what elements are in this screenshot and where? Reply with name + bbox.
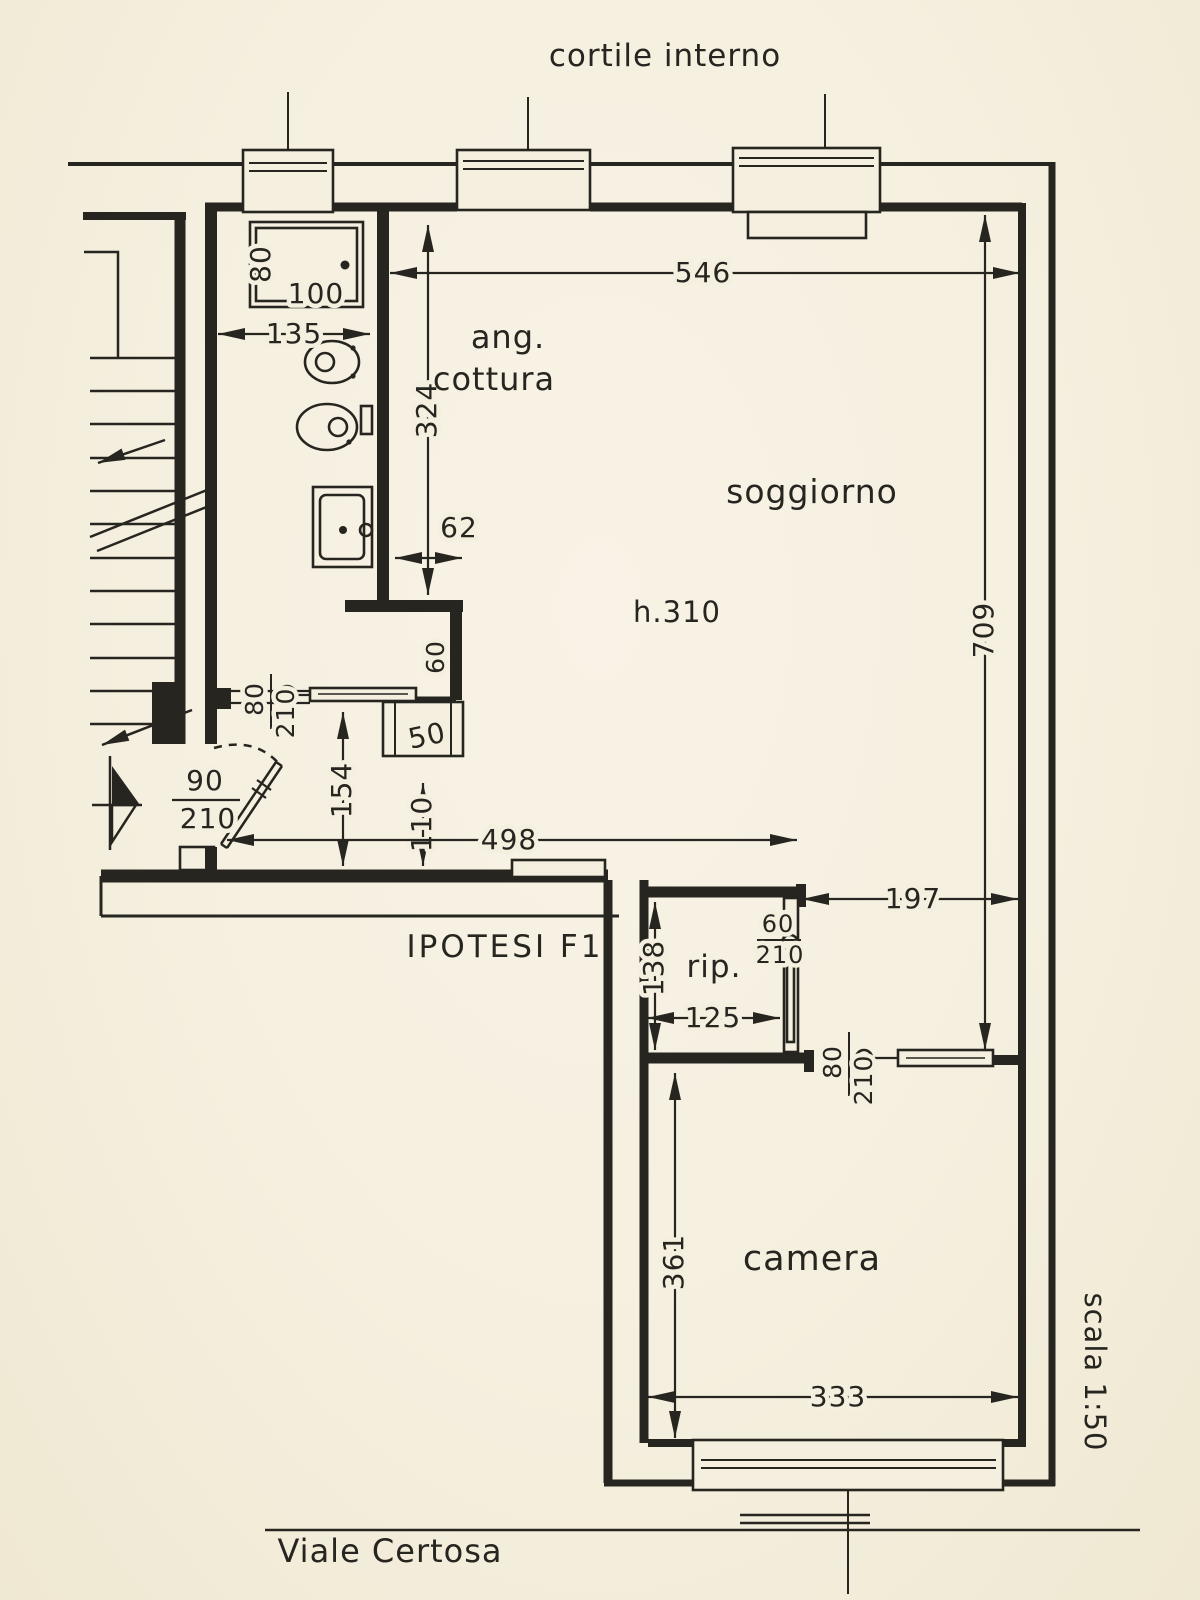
bidet — [297, 404, 372, 450]
window-bathroom — [243, 150, 333, 212]
dim-living-width-label: 546 — [675, 256, 731, 289]
stair-landing-edge — [84, 252, 118, 358]
dimensions: 546 324 135 80 100 62 60 50 154 110 — [218, 215, 1020, 1438]
dim-niche-gap-label: 62 — [440, 511, 478, 544]
stair-direction-arrow — [98, 440, 165, 463]
window-kitchen — [457, 150, 590, 210]
dim-shower-length-label: 100 — [288, 277, 344, 310]
floor-plan-page: 546 324 135 80 100 62 60 50 154 110 — [0, 0, 1200, 1600]
storage-door-width: 60 — [762, 910, 795, 938]
dim-bath-width-label: 135 — [266, 317, 322, 350]
entry-door-width: 90 — [186, 764, 224, 797]
storage-door-height: 210 — [756, 941, 805, 969]
dim-bedroom-depth-label: 361 — [657, 1234, 690, 1290]
reference-lines — [288, 92, 848, 1594]
dim-bedroom-width: 333 — [648, 1380, 1018, 1413]
bath-door-height: 210 — [271, 688, 300, 739]
dim-hall-depth-label: 154 — [325, 762, 358, 818]
bedroom-label: camera — [743, 1239, 881, 1279]
courtyard-label: cortile interno — [549, 38, 781, 74]
bidet-faucet — [361, 406, 372, 434]
dim-shower-width-label: 80 — [244, 245, 277, 283]
dim-passage-width-label: 197 — [885, 882, 941, 915]
ceiling-height-label: h.310 — [633, 595, 721, 629]
dim-kitchen-depth: 324 — [410, 225, 443, 595]
washbasin — [313, 487, 372, 567]
dim-hall-inner: 110 — [405, 783, 438, 866]
bedroom-door-size: 80 210 — [818, 1032, 878, 1105]
dim-storage-width-label: 125 — [685, 1001, 741, 1034]
scale-label: scala 1:50 — [1078, 1293, 1112, 1452]
door-swing-arc — [214, 745, 281, 766]
kitchen-label-1: ang. — [471, 318, 545, 356]
dim-hall-width-label: 498 — [481, 823, 537, 856]
street-label: Viale Certosa — [277, 1532, 502, 1570]
dim-niche-depth-label: 60 — [421, 640, 450, 674]
dim-bedroom-depth: 361 — [657, 1073, 690, 1438]
hypothesis-label: IPOTESI F1 — [407, 929, 604, 965]
storage-label: rip. — [687, 949, 742, 985]
staircase — [84, 252, 214, 745]
dim-hall-width: 498 — [227, 823, 797, 856]
bath-door-size: 80 210 — [240, 674, 300, 738]
dim-niche-gap: 62 — [395, 511, 478, 558]
wall-storage-bottom-jamb — [804, 1050, 814, 1072]
window-living — [733, 148, 880, 238]
bedroom-door-height: 210 — [849, 1055, 878, 1106]
radiator — [512, 860, 605, 877]
dim-living-width: 546 — [390, 256, 1020, 289]
entry-door-size: 90 210 — [172, 764, 240, 835]
kitchen-label-2: cottura — [433, 360, 555, 398]
dim-living-depth-label: 709 — [967, 602, 1000, 658]
dim-bedroom-width-label: 333 — [810, 1380, 866, 1413]
shower-drain — [341, 261, 350, 270]
wall-bath-door-jamb — [217, 688, 231, 709]
dim-hall-inner-label: 110 — [405, 796, 438, 852]
floor-plan-svg: 546 324 135 80 100 62 60 50 154 110 — [0, 0, 1200, 1600]
stair-treads — [90, 358, 176, 724]
dim-living-depth: 709 — [967, 215, 1000, 1050]
dim-storage-width: 125 — [647, 1001, 780, 1034]
north-entry-marker — [92, 756, 142, 850]
living-label: soggiorno — [726, 472, 898, 511]
bedroom-door-width: 80 — [818, 1045, 847, 1079]
bath-door-width: 80 — [240, 682, 269, 716]
entry-door-height: 210 — [180, 802, 236, 835]
dim-storage-depth-label: 138 — [637, 940, 670, 996]
wall-stair-landing-pier — [152, 682, 178, 744]
dim-hall-depth: 154 — [325, 712, 358, 866]
